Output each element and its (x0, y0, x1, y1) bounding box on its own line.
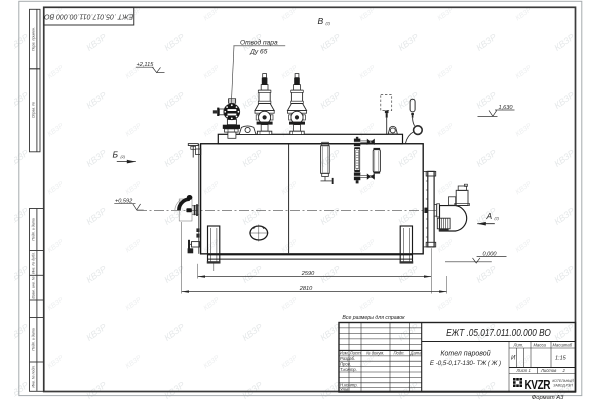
svg-text:Пров.: Пров. (340, 362, 351, 367)
svg-text:И: И (511, 356, 516, 362)
svg-text:КОТЕЛЬНЫЙ: КОТЕЛЬНЫЙ (552, 379, 574, 383)
svg-text:1: 1 (529, 368, 531, 373)
svg-text:Утв.: Утв. (340, 387, 350, 392)
svg-text:1,630: 1,630 (499, 105, 514, 111)
svg-text:ЗАВОД РЭП: ЗАВОД РЭП (553, 384, 573, 388)
svg-text:Инв. № подл.: Инв. № подл. (31, 365, 35, 387)
svg-text:Подп. и дата: Подп. и дата (31, 328, 35, 351)
svg-text:(2): (2) (495, 217, 499, 221)
svg-text:ЕЖТ .05.017.011.00.000 ВО: ЕЖТ .05.017.011.00.000 ВО (44, 12, 134, 19)
svg-text:Е -0,5-0,17-130- ТЖ ( Ж ): Е -0,5-0,17-130- ТЖ ( Ж ) (430, 360, 501, 367)
svg-text:Дата: Дата (410, 351, 423, 356)
svg-text:Изм.: Изм. (340, 351, 349, 356)
svg-text:№ докум.: № докум. (366, 351, 384, 356)
svg-text:Отвод пара: Отвод пара (240, 39, 278, 47)
svg-text:Подп.: Подп. (394, 351, 405, 356)
svg-text:2590: 2590 (301, 271, 315, 277)
svg-text:Ду 65: Ду 65 (249, 49, 268, 56)
svg-text:Инв. № дубл.: Инв. № дубл. (31, 252, 35, 274)
svg-text:А: А (486, 211, 493, 221)
svg-text:Лист: Лист (349, 351, 361, 356)
svg-text:Перв. примен.: Перв. примен. (31, 27, 35, 51)
svg-text:Масштаб: Масштаб (553, 342, 573, 347)
svg-text:(2): (2) (326, 21, 330, 25)
svg-text:Разраб.: Разраб. (340, 356, 355, 361)
svg-text:1:15: 1:15 (555, 356, 567, 362)
svg-text:Подп. и дата: Подп. и дата (31, 218, 35, 241)
svg-text:+2,115: +2,115 (137, 62, 155, 68)
svg-text:2810: 2810 (299, 286, 313, 292)
svg-text:+0,592: +0,592 (115, 199, 133, 205)
svg-text:Т.контр.: Т.контр. (340, 367, 357, 372)
svg-text:(2): (2) (121, 155, 125, 159)
svg-text:Б: Б (113, 150, 119, 160)
svg-text:Взам. инв. №: Взам. инв. № (31, 276, 35, 298)
svg-text:Все размеры для справок: Все размеры для справок (342, 315, 405, 321)
svg-text:Листов: Листов (540, 368, 557, 373)
svg-text:Справ. №: Справ. № (31, 102, 35, 118)
svg-text:Лит.: Лит. (513, 342, 524, 347)
svg-text:Формат А3: Формат А3 (532, 395, 564, 400)
svg-text:KVZR: KVZR (525, 379, 552, 392)
svg-text:0,000: 0,000 (483, 251, 498, 257)
svg-text:Масса: Масса (534, 342, 547, 347)
svg-text:Котел паровой: Котел паровой (440, 350, 490, 358)
svg-text:ЕЖТ .05.017.011.00.000 ВО: ЕЖТ .05.017.011.00.000 ВО (446, 327, 551, 338)
svg-text:Лист: Лист (516, 368, 528, 373)
svg-text:В: В (318, 16, 324, 26)
